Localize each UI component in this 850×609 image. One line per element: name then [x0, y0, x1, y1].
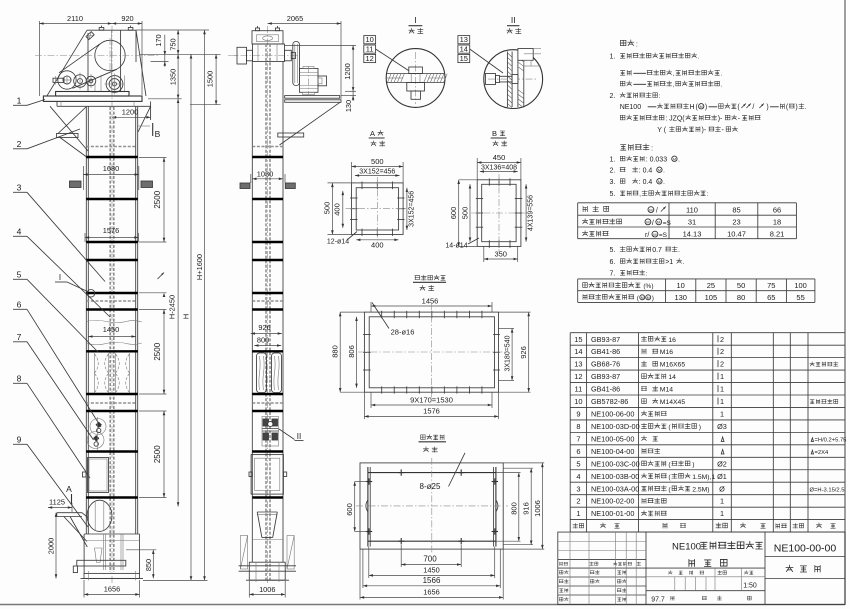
svg-text:>1: >1 [665, 259, 673, 266]
svg-text:31: 31 [688, 218, 696, 227]
svg-text:NE100-03D-00: NE100-03D-00 [591, 422, 640, 431]
svg-text:1: 1 [720, 509, 724, 518]
svg-text:350: 350 [494, 250, 507, 259]
svg-text:3: 3 [576, 484, 580, 493]
svg-text:1450: 1450 [103, 325, 119, 334]
svg-text:6.: 6. [610, 259, 616, 266]
svg-text:1350: 1350 [169, 69, 178, 85]
svg-text:1: 1 [720, 372, 724, 381]
svg-text:0.7: 0.7 [652, 247, 662, 254]
svg-text:1: 1 [720, 410, 724, 419]
svg-text:13: 13 [460, 35, 468, 44]
svg-text:H-2450: H-2450 [168, 295, 177, 319]
svg-text:r/: r/ [645, 232, 649, 239]
svg-text:880: 880 [331, 345, 340, 358]
svg-text:600: 600 [449, 207, 458, 220]
svg-text:1: 1 [720, 497, 724, 506]
svg-text:1: 1 [720, 397, 724, 406]
svg-text:Ø3: Ø3 [717, 422, 727, 431]
svg-text:A: A [66, 484, 72, 494]
svg-text:2: 2 [720, 347, 724, 356]
svg-text:800: 800 [509, 502, 518, 515]
svg-text:/: / [656, 208, 658, 215]
svg-text:M16X65: M16X65 [660, 362, 686, 369]
svg-text:2: 2 [576, 497, 580, 506]
svg-text:55: 55 [796, 293, 804, 302]
svg-text:23: 23 [732, 218, 740, 227]
svg-text:NE100: NE100 [672, 542, 701, 553]
svg-text:M14X45: M14X45 [660, 399, 686, 406]
svg-text:(%): (%) [643, 283, 653, 290]
svg-text:: 0.4: : 0.4 [639, 179, 653, 186]
svg-text:4X139=556: 4X139=556 [528, 195, 535, 231]
svg-text:920: 920 [121, 14, 133, 23]
svg-text:9: 9 [17, 435, 22, 445]
svg-text:12: 12 [574, 372, 582, 381]
svg-text:3X180=540: 3X180=540 [504, 335, 511, 371]
svg-text:8: 8 [576, 422, 580, 431]
svg-text:14-ø14: 14-ø14 [445, 243, 467, 250]
svg-text:Ø1: Ø1 [717, 472, 727, 481]
svg-text:14: 14 [460, 45, 468, 54]
svg-text:800: 800 [257, 336, 269, 345]
svg-text:600: 600 [345, 503, 354, 516]
svg-text:GB41-86: GB41-86 [591, 347, 620, 356]
svg-text:)-: )- [718, 116, 723, 123]
svg-text:6: 6 [576, 447, 580, 456]
svg-text:2: 2 [720, 335, 724, 344]
svg-text:5: 5 [576, 459, 580, 468]
svg-text:75: 75 [767, 281, 775, 290]
svg-text:750: 750 [169, 38, 178, 50]
svg-text:850: 850 [144, 559, 153, 571]
svg-text:3: 3 [17, 183, 22, 193]
svg-text:): ) [692, 461, 694, 468]
svg-text:12: 12 [366, 54, 374, 63]
svg-text:H: H [690, 104, 695, 111]
svg-text:8.21: 8.21 [770, 230, 785, 239]
svg-text:: 0.033: : 0.033 [646, 157, 668, 164]
svg-text::: : [651, 146, 653, 153]
svg-text:806: 806 [347, 345, 356, 358]
svg-text:18: 18 [773, 218, 781, 227]
svg-text:11: 11 [366, 45, 374, 54]
svg-text:1.: 1. [610, 157, 616, 164]
svg-text:)-: )- [702, 127, 707, 134]
svg-text:1500: 1500 [206, 71, 215, 87]
svg-text:H+1600: H+1600 [195, 254, 204, 280]
svg-text:2000: 2000 [47, 538, 56, 554]
svg-text:: 0.4: : 0.4 [639, 168, 653, 175]
svg-text:14: 14 [668, 374, 676, 381]
svg-text:II: II [511, 15, 516, 25]
svg-text:=2X4: =2X4 [815, 450, 829, 456]
svg-text:B: B [492, 129, 497, 138]
svg-text:5.: 5. [610, 191, 616, 198]
svg-text:NE100-03B-00: NE100-03B-00 [591, 472, 639, 481]
svg-text:M: M [647, 296, 650, 300]
svg-text:M: M [658, 180, 661, 184]
svg-text:400: 400 [371, 241, 384, 250]
svg-text:M16: M16 [660, 349, 673, 356]
svg-text:400: 400 [332, 203, 341, 216]
svg-text:170: 170 [154, 34, 163, 46]
svg-text:=H/0.2+5.75: =H/0.2+5.75 [815, 437, 847, 443]
svg-text:2: 2 [17, 139, 22, 149]
svg-text:500: 500 [322, 202, 331, 215]
svg-text:1030: 1030 [257, 170, 273, 179]
svg-text:50: 50 [737, 281, 745, 290]
svg-text:25: 25 [707, 281, 715, 290]
svg-text:Ø: Ø [719, 484, 725, 493]
svg-text:I: I [59, 273, 61, 282]
svg-text:NE100-04-00: NE100-04-00 [591, 447, 634, 456]
svg-text:1656: 1656 [423, 588, 439, 597]
svg-text:1456: 1456 [422, 297, 439, 306]
svg-text:10: 10 [574, 397, 582, 406]
svg-text:130: 130 [344, 100, 353, 112]
svg-text:/: / [652, 220, 654, 227]
svg-text:GB5782-86: GB5782-86 [591, 397, 628, 406]
svg-text:1006: 1006 [533, 500, 542, 517]
svg-text:M: M [658, 168, 661, 172]
svg-text:): ) [795, 104, 797, 111]
svg-text:3X136=408: 3X136=408 [481, 165, 517, 172]
svg-text:14: 14 [574, 347, 582, 356]
svg-text:7: 7 [17, 332, 22, 342]
svg-text:10: 10 [677, 281, 685, 290]
svg-text:Ø=H-3.15/2.5: Ø=H-3.15/2.5 [810, 487, 845, 493]
svg-text:12-ø14: 12-ø14 [327, 239, 349, 246]
svg-text:/: / [752, 104, 754, 111]
svg-text:): ) [766, 104, 768, 111]
svg-text:1656: 1656 [104, 585, 120, 594]
svg-text:85: 85 [732, 206, 740, 215]
svg-text:B: B [155, 129, 161, 139]
svg-text:=S: =S [659, 232, 668, 239]
svg-text:GB68-76: GB68-76 [591, 360, 620, 369]
svg-text:1.: 1. [610, 54, 616, 61]
svg-text:2.: 2. [610, 168, 616, 175]
svg-text:2.: 2. [610, 93, 616, 100]
svg-text:1.5M),1: 1.5M),1 [692, 474, 715, 481]
svg-text:1125: 1125 [49, 498, 65, 507]
svg-text:926: 926 [258, 323, 270, 332]
svg-text:H: H [182, 314, 191, 319]
svg-text:NE100-02-00: NE100-02-00 [591, 497, 634, 506]
svg-text:3.: 3. [610, 179, 616, 186]
svg-text:110: 110 [686, 206, 698, 215]
svg-text:NE100-05-00: NE100-05-00 [591, 434, 634, 443]
svg-text:M14: M14 [660, 387, 673, 394]
svg-text:1450: 1450 [423, 566, 439, 575]
svg-text:Ø2: Ø2 [717, 459, 727, 468]
svg-text:=S: =S [663, 220, 672, 227]
svg-text:5: 5 [17, 270, 22, 280]
svg-text:7.: 7. [610, 271, 616, 278]
svg-text:500: 500 [461, 207, 470, 220]
svg-text:9X170=1530: 9X170=1530 [410, 396, 453, 405]
svg-text:1680: 1680 [103, 164, 119, 173]
svg-text:97.7: 97.7 [651, 597, 665, 604]
svg-text:2.5M): 2.5M) [692, 486, 709, 493]
svg-text:6: 6 [17, 300, 22, 310]
svg-text:: JZQ(: : JZQ( [665, 116, 685, 123]
svg-text:5.: 5. [610, 247, 616, 254]
svg-text:A: A [370, 129, 375, 138]
svg-text:2: 2 [720, 360, 724, 369]
svg-text:8-ø25: 8-ø25 [420, 482, 441, 491]
svg-text:NE100-03C-00: NE100-03C-00 [591, 459, 640, 468]
svg-text:2065: 2065 [287, 14, 303, 23]
svg-text:65: 65 [767, 293, 775, 302]
svg-text:11: 11 [575, 385, 583, 394]
svg-text:M: M [700, 105, 703, 109]
svg-text:NE100-03A-00: NE100-03A-00 [591, 484, 639, 493]
svg-text:80: 80 [737, 293, 745, 302]
svg-text::: : [636, 42, 638, 49]
svg-text:4: 4 [17, 227, 22, 237]
svg-text:I: I [414, 15, 416, 25]
svg-text:1: 1 [720, 385, 724, 394]
svg-text:GB93-87: GB93-87 [591, 335, 620, 344]
svg-text:926: 926 [519, 346, 528, 359]
svg-text:): ) [705, 104, 707, 111]
svg-text:15: 15 [574, 335, 582, 344]
svg-text:GB93-87: GB93-87 [591, 372, 620, 381]
svg-text:500: 500 [371, 157, 384, 166]
svg-text:3X152=456: 3X152=456 [409, 191, 416, 227]
svg-text:NE100-00-00: NE100-00-00 [774, 543, 837, 555]
svg-text:): ) [699, 424, 701, 431]
svg-text:2110: 2110 [67, 14, 83, 23]
svg-text:): ) [652, 295, 654, 302]
svg-text:700: 700 [423, 555, 437, 564]
svg-text:450: 450 [493, 153, 506, 162]
svg-text:1:50: 1:50 [743, 583, 757, 590]
svg-text:66: 66 [773, 206, 781, 215]
svg-text:916: 916 [522, 502, 531, 515]
svg-text:1200: 1200 [343, 63, 352, 79]
svg-text:2500: 2500 [153, 342, 162, 360]
svg-text:7: 7 [576, 434, 580, 443]
svg-text:16: 16 [668, 337, 676, 344]
svg-text:1006: 1006 [259, 585, 275, 594]
svg-text:8: 8 [17, 374, 22, 384]
svg-text:15: 15 [460, 54, 468, 63]
svg-text:4: 4 [576, 472, 580, 481]
svg-text:GB41-86: GB41-86 [591, 385, 620, 394]
svg-text:130: 130 [674, 293, 687, 302]
svg-text:100: 100 [794, 281, 807, 290]
svg-text:14.13: 14.13 [683, 230, 702, 239]
svg-text:105: 105 [705, 293, 718, 302]
svg-text:1: 1 [17, 96, 22, 106]
svg-text:1: 1 [576, 509, 580, 518]
svg-text:3X152=456: 3X152=456 [359, 169, 395, 176]
svg-text:2500: 2500 [153, 190, 162, 208]
svg-text:Y (: Y ( [657, 127, 666, 134]
svg-text:13: 13 [574, 360, 582, 369]
svg-text:NE100-06-00: NE100-06-00 [591, 410, 634, 419]
svg-text:10.47: 10.47 [727, 230, 746, 239]
svg-text:NE100-01-00: NE100-01-00 [591, 509, 634, 518]
svg-text:II: II [297, 432, 301, 441]
svg-text:NE100: NE100 [620, 104, 642, 111]
svg-text:10: 10 [366, 35, 374, 44]
svg-text:1576: 1576 [423, 407, 440, 416]
svg-text:9: 9 [576, 410, 580, 419]
svg-text:2500: 2500 [153, 445, 162, 463]
svg-text:M: M [641, 296, 644, 300]
svg-text:1576: 1576 [103, 226, 119, 235]
svg-text:M: M [673, 157, 676, 161]
svg-text:1566: 1566 [423, 576, 441, 585]
svg-text:28-ø16: 28-ø16 [391, 328, 415, 337]
